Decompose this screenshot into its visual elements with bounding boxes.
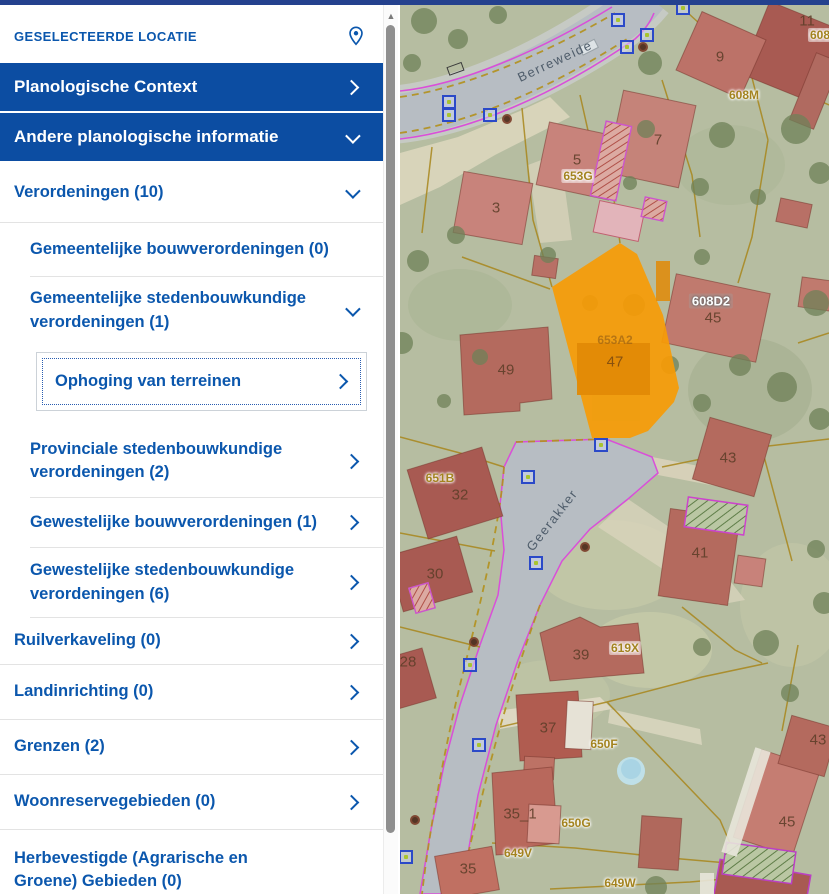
- location-pin-icon[interactable]: [345, 25, 367, 47]
- chevron-down-icon: [345, 301, 361, 317]
- aerial-map-canvas: [400, 5, 829, 894]
- tree-item-gemeentelijke-bouwverordeningen[interactable]: Gemeentelijke bouwverordeningen (0): [30, 223, 383, 277]
- accordion-label: Planologische Context: [14, 77, 197, 97]
- chevron-down-icon: [345, 183, 361, 199]
- selected-location-header: GESELECTEERDE LOCATIE: [0, 5, 383, 63]
- tree-item-gewestelijke-bouwverordeningen[interactable]: Gewestelijke bouwverordeningen (1): [30, 498, 383, 548]
- chevron-right-icon: [344, 453, 360, 469]
- boundary-point: [638, 42, 648, 52]
- map-view[interactable]: Berreweide Geerakker 11 9 7 5 3 49 45 47…: [400, 5, 829, 894]
- chevron-right-icon: [344, 575, 360, 591]
- survey-marker: [521, 470, 535, 484]
- tree-leaf-ophoging-van-terreinen[interactable]: Ophoging van terreinen: [42, 358, 361, 405]
- tree-item-ruilverkaveling[interactable]: Ruilverkaveling (0): [0, 618, 383, 665]
- survey-marker: [483, 108, 497, 122]
- survey-marker: [529, 556, 543, 570]
- tree-item-gemeentelijke-stedenbouwkundige[interactable]: Gemeentelijke stedenbouwkundige verorden…: [30, 277, 383, 344]
- survey-marker: [442, 95, 456, 109]
- scrollbar-up-arrow-icon[interactable]: ▲: [386, 10, 396, 22]
- chevron-right-icon: [344, 79, 360, 95]
- survey-marker: [400, 850, 413, 864]
- tree-leaf-box: Ophoging van terreinen: [36, 352, 367, 411]
- tree-item-gewestelijke-stedenbouwkundige[interactable]: Gewestelijke stedenbouwkundige verordeni…: [30, 548, 383, 618]
- accordion-andere-informatie[interactable]: Andere planologische informatie: [0, 113, 383, 161]
- survey-marker: [463, 658, 477, 672]
- tree-item-grenzen[interactable]: Grenzen (2): [0, 720, 383, 775]
- survey-marker: [472, 738, 486, 752]
- chevron-down-icon: [345, 128, 361, 144]
- boundary-point: [580, 542, 590, 552]
- survey-marker: [640, 28, 654, 42]
- boundary-point: [502, 114, 512, 124]
- boundary-point: [410, 815, 420, 825]
- panel-title: GESELECTEERDE LOCATIE: [14, 29, 197, 44]
- sidebar-scrollbar[interactable]: ▲: [383, 5, 398, 894]
- geoportal-page: GESELECTEERDE LOCATIE Planologische Cont…: [0, 0, 829, 894]
- tree-item-landinrichting[interactable]: Landinrichting (0): [0, 665, 383, 720]
- tree-item-provinciale-stedenbouwkundige[interactable]: Provinciale stedenbouwkundige verordenin…: [30, 425, 383, 498]
- chevron-right-icon: [344, 739, 360, 755]
- accordion-label: Andere planologische informatie: [14, 127, 279, 147]
- chevron-right-icon: [344, 684, 360, 700]
- info-sidebar: GESELECTEERDE LOCATIE Planologische Cont…: [0, 5, 383, 894]
- layer-tree: Verordeningen (10) Gemeentelijke bouwver…: [0, 163, 383, 894]
- survey-marker: [676, 5, 690, 15]
- chevron-right-icon: [344, 633, 360, 649]
- tree-item-herbevestigde-gebieden[interactable]: Herbevestigde (Agrarische en Groene) Geb…: [0, 830, 383, 894]
- scrollbar-thumb[interactable]: [386, 25, 395, 833]
- chevron-right-icon: [333, 374, 349, 390]
- survey-marker: [611, 13, 625, 27]
- survey-marker: [620, 40, 634, 54]
- survey-marker: [442, 108, 456, 122]
- tree-item-woonreservegebieden[interactable]: Woonreservegebieden (0): [0, 775, 383, 830]
- chevron-right-icon: [344, 515, 360, 531]
- survey-marker: [594, 438, 608, 452]
- chevron-right-icon: [344, 794, 360, 810]
- tree-item-verordeningen[interactable]: Verordeningen (10): [0, 163, 383, 223]
- accordion-planologische-context[interactable]: Planologische Context: [0, 63, 383, 111]
- boundary-point: [469, 637, 479, 647]
